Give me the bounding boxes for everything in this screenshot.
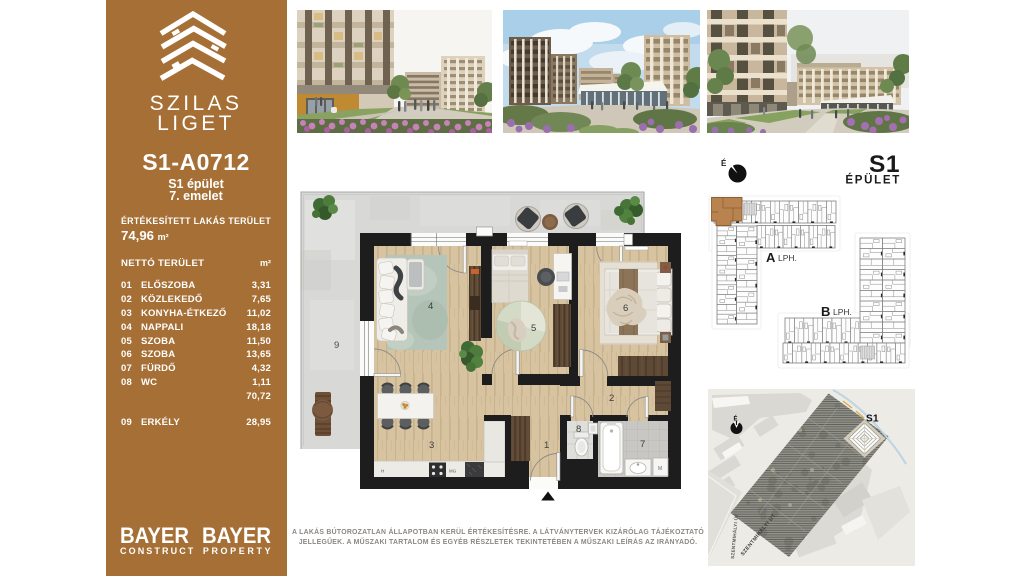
svg-text:É: É (721, 159, 727, 168)
svg-text:S1: S1 (866, 414, 879, 425)
svg-text:H: H (381, 469, 384, 474)
svg-text:M: M (658, 466, 662, 472)
svg-text:ÉPÜLET: ÉPÜLET (845, 174, 901, 187)
svg-text:LPH.: LPH. (778, 253, 797, 263)
svg-text:B: B (821, 304, 830, 319)
svg-text:5: 5 (531, 323, 536, 334)
svg-text:A: A (766, 250, 776, 265)
svg-text:2: 2 (609, 393, 614, 404)
svg-text:9: 9 (334, 340, 339, 351)
svg-text:MG: MG (449, 469, 457, 474)
svg-text:7: 7 (640, 439, 645, 450)
svg-text:LPH.: LPH. (833, 307, 852, 317)
svg-text:6: 6 (623, 303, 628, 314)
svg-text:8: 8 (576, 424, 581, 435)
svg-text:4: 4 (428, 301, 433, 312)
svg-text:3: 3 (429, 440, 434, 451)
svg-text:1: 1 (544, 440, 549, 451)
